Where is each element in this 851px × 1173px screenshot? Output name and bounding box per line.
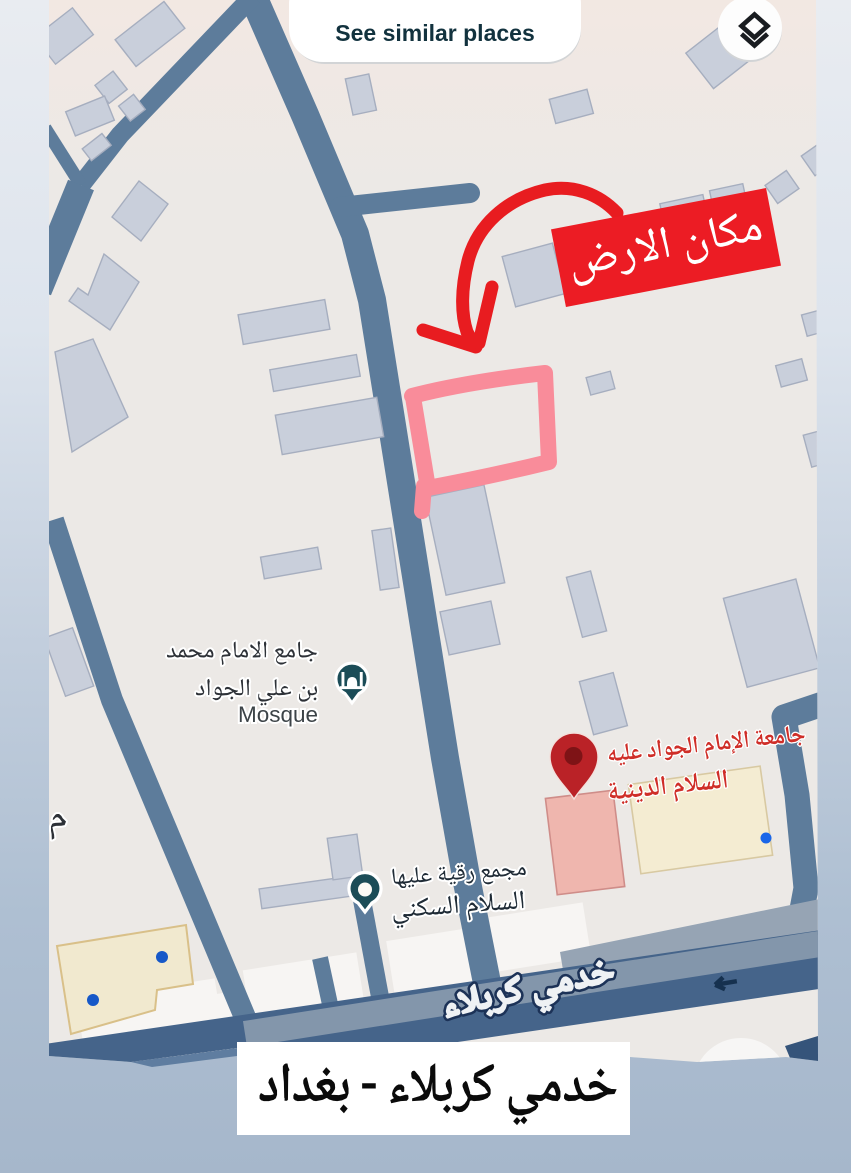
svg-text:See similar places: See similar places bbox=[335, 20, 534, 46]
svg-text:Mosque: Mosque bbox=[238, 702, 318, 727]
